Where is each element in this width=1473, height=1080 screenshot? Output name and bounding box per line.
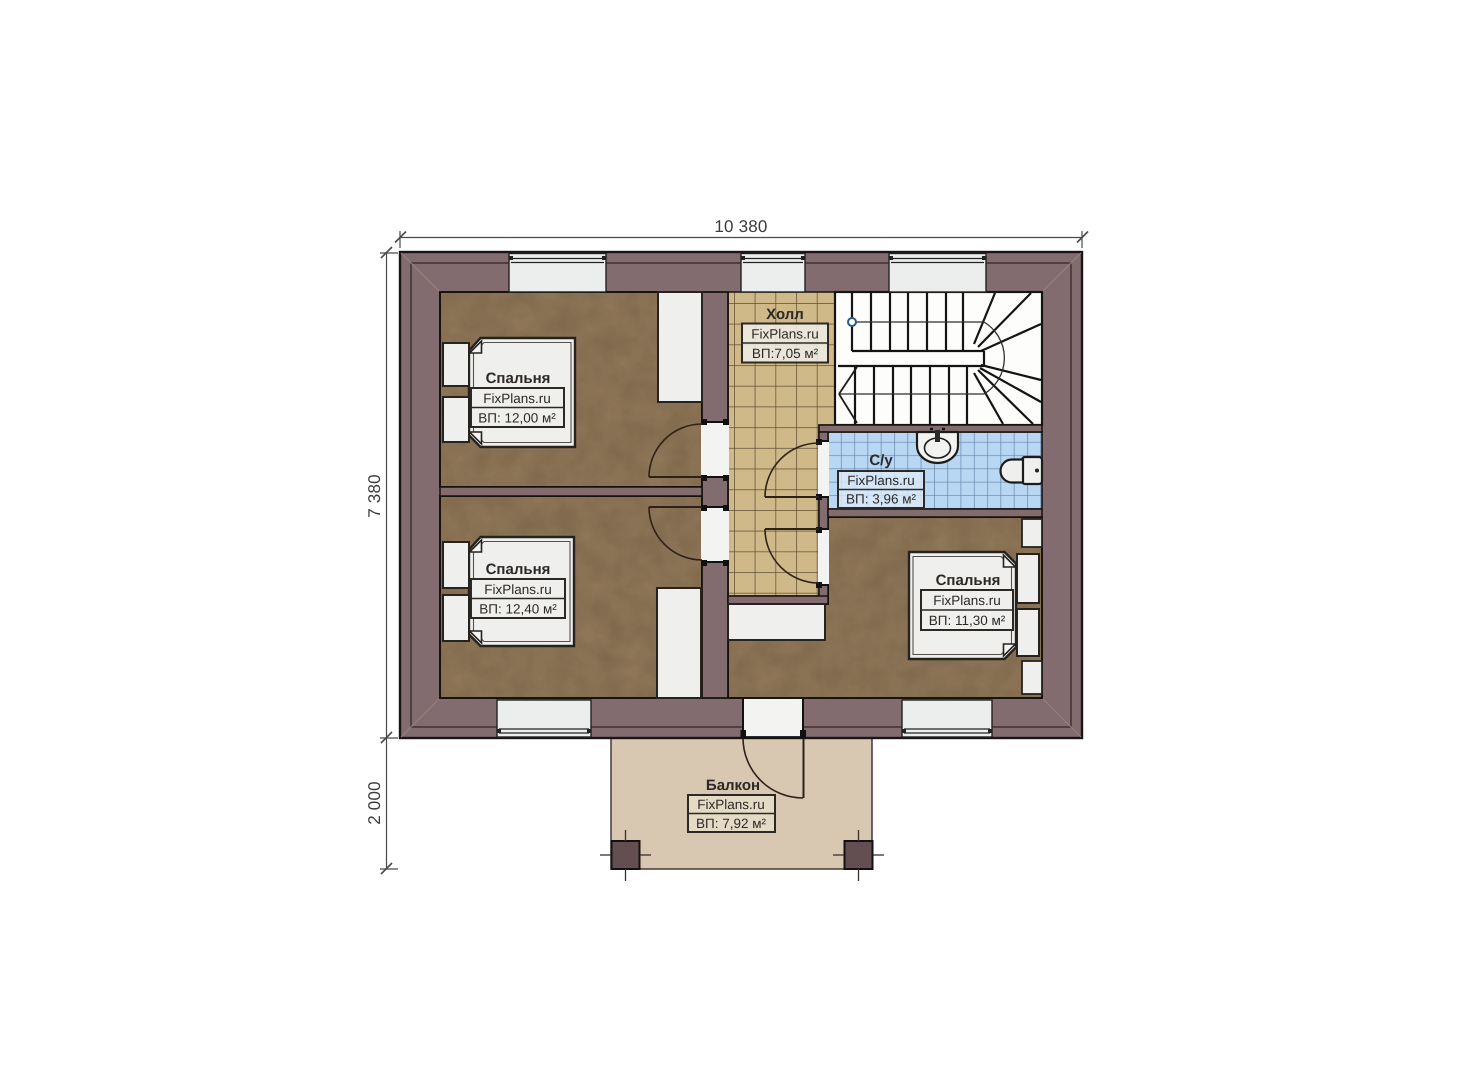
svg-text:Холл: Холл xyxy=(766,306,804,323)
svg-text:7 380: 7 380 xyxy=(365,474,384,518)
svg-text:FixPlans.ru: FixPlans.ru xyxy=(484,582,552,597)
svg-text:FixPlans.ru: FixPlans.ru xyxy=(697,797,765,812)
svg-text:ВП: 3,96 м²: ВП: 3,96 м² xyxy=(846,492,917,507)
svg-text:10 380: 10 380 xyxy=(714,217,767,236)
svg-text:Спальня: Спальня xyxy=(936,572,1001,589)
svg-text:FixPlans.ru: FixPlans.ru xyxy=(847,473,915,488)
svg-text:ВП: 7,92 м²: ВП: 7,92 м² xyxy=(696,816,767,831)
svg-text:Спальня: Спальня xyxy=(486,561,551,578)
svg-text:FixPlans.ru: FixPlans.ru xyxy=(483,391,551,406)
svg-text:С/у: С/у xyxy=(869,452,893,469)
svg-text:Балкон: Балкон xyxy=(706,777,760,794)
svg-text:Спальня: Спальня xyxy=(486,370,551,387)
svg-text:ВП: 12,00 м²: ВП: 12,00 м² xyxy=(478,411,556,426)
svg-text:ВП:7,05 м²: ВП:7,05 м² xyxy=(752,346,819,361)
svg-text:2 000: 2 000 xyxy=(365,781,384,825)
svg-text:ВП: 12,40 м²: ВП: 12,40 м² xyxy=(479,602,557,617)
svg-text:FixPlans.ru: FixPlans.ru xyxy=(751,327,819,342)
svg-text:ВП: 11,30 м²: ВП: 11,30 м² xyxy=(929,613,1006,628)
svg-text:FixPlans.ru: FixPlans.ru xyxy=(933,593,1001,608)
